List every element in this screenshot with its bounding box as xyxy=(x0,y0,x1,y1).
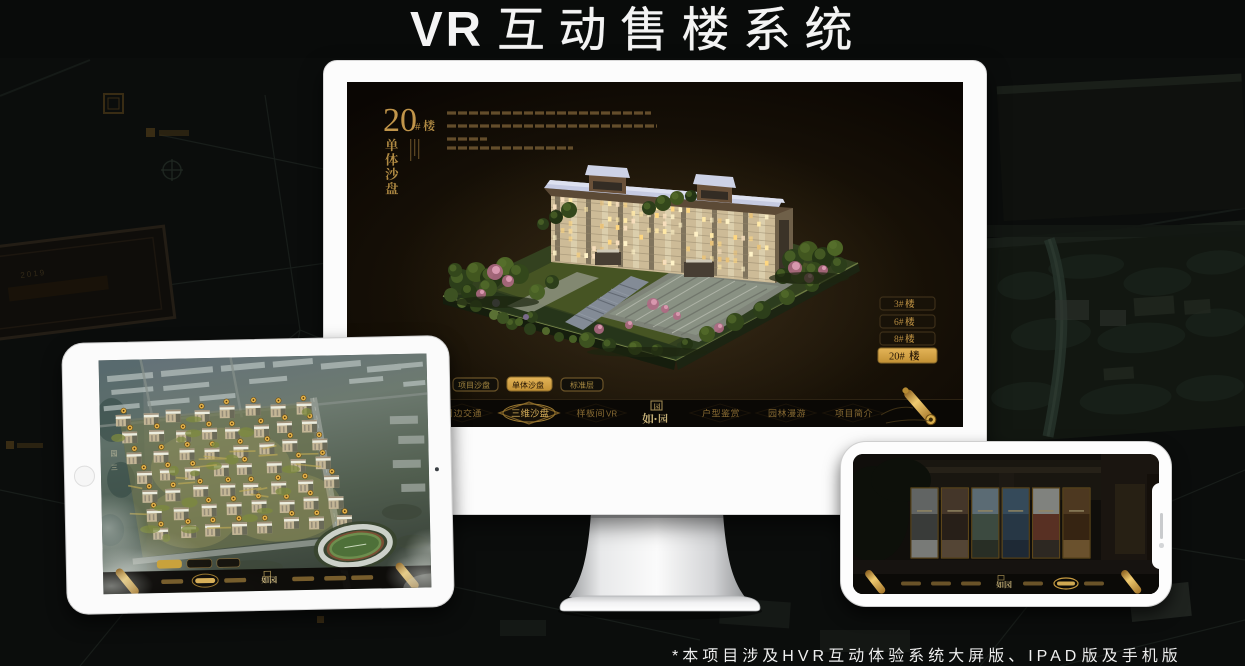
svg-text:8#: 8# xyxy=(894,335,904,345)
svg-text:6#: 6# xyxy=(894,318,904,328)
svg-text:*: * xyxy=(672,648,682,665)
svg-text:IPAD: IPAD xyxy=(1028,648,1080,665)
svg-text:VR: VR xyxy=(410,3,484,57)
svg-text:HVR: HVR xyxy=(782,648,828,665)
svg-text:VR: VR xyxy=(606,410,617,419)
svg-text:20: 20 xyxy=(383,102,417,139)
svg-text:3#: 3# xyxy=(894,300,904,310)
svg-text:20#: 20# xyxy=(889,352,906,363)
svg-text:#: # xyxy=(415,121,421,133)
